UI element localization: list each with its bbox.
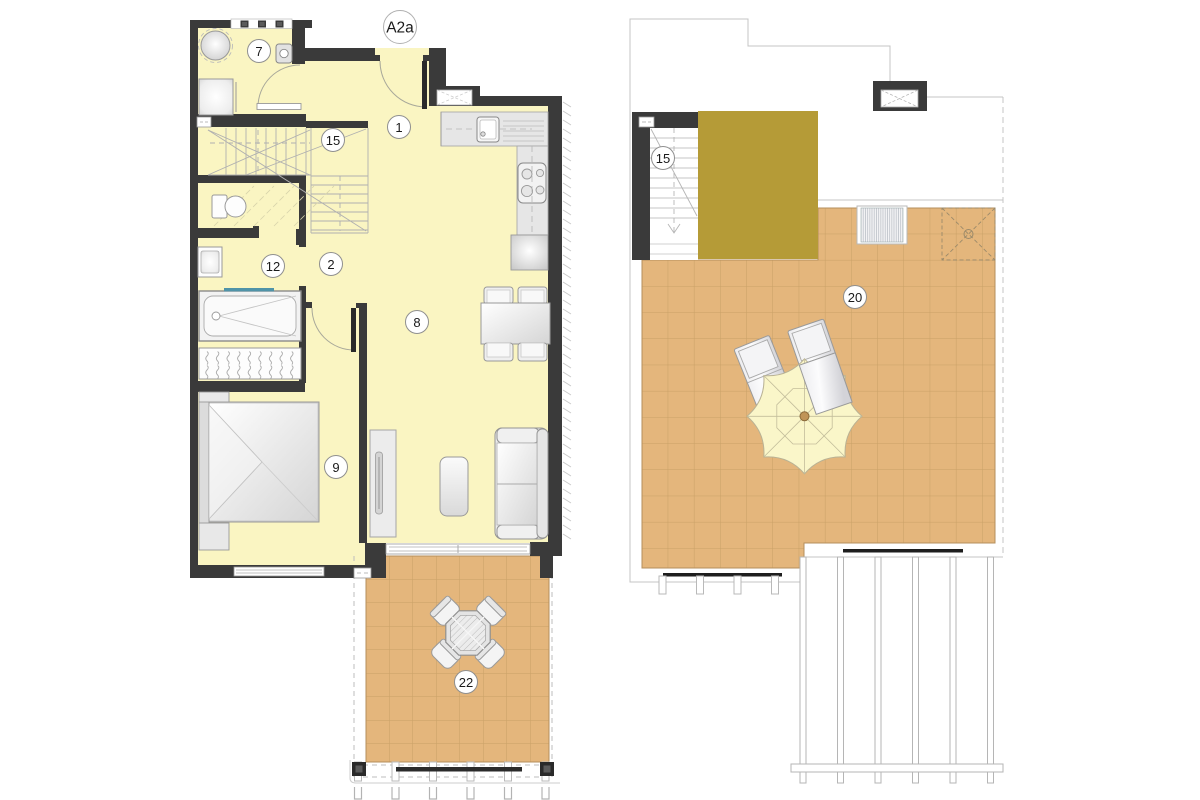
svg-text:7: 7 bbox=[255, 44, 262, 59]
svg-text:20: 20 bbox=[848, 290, 862, 305]
svg-text:15: 15 bbox=[326, 133, 340, 148]
svg-text:A2a: A2a bbox=[386, 20, 414, 37]
svg-text:1: 1 bbox=[395, 120, 402, 135]
svg-text:22: 22 bbox=[459, 675, 473, 690]
svg-text:15: 15 bbox=[656, 151, 670, 166]
svg-text:9: 9 bbox=[332, 460, 339, 475]
svg-text:2: 2 bbox=[327, 257, 334, 272]
svg-text:8: 8 bbox=[413, 315, 420, 330]
svg-text:12: 12 bbox=[266, 259, 280, 274]
